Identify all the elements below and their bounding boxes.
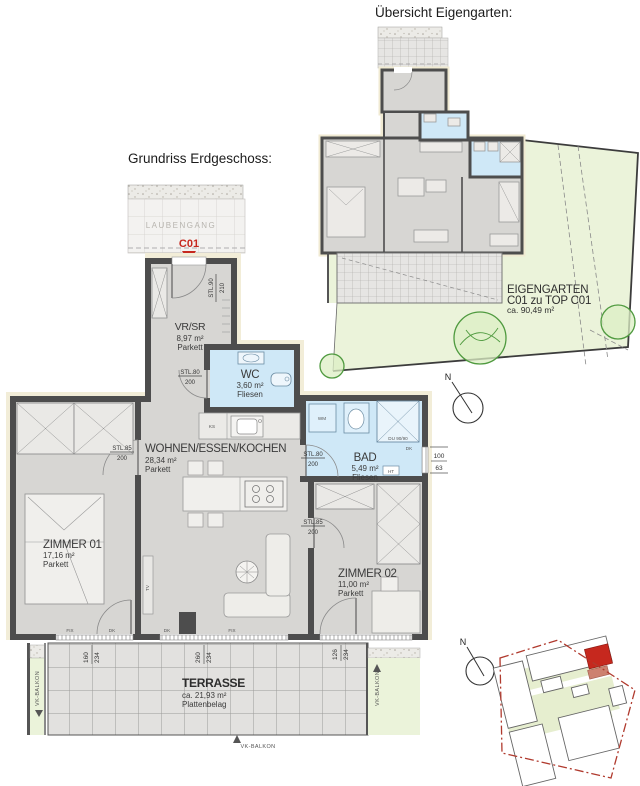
- canopy-hatch: [128, 185, 243, 199]
- svg-text:VK-BALKON: VK-BALKON: [375, 671, 381, 706]
- wohnen-area: 28,34 m²: [145, 456, 177, 465]
- svg-text:STL.90: STL.90: [209, 278, 215, 298]
- svg-text:63: 63: [435, 465, 443, 472]
- shower-label: DU 90/90: [388, 436, 408, 441]
- svg-text:200: 200: [185, 380, 196, 386]
- window-label-3: DK: [164, 628, 171, 633]
- overview-canopy-hatch: [378, 27, 442, 38]
- wc-name: WC: [241, 369, 260, 381]
- wohnen-floor: Parkett: [145, 465, 171, 474]
- svg-text:260: 260: [195, 652, 202, 663]
- bad-area: 5,49 m²: [351, 464, 378, 473]
- svg-text:100: 100: [434, 453, 445, 460]
- window-label-4: FIX: [228, 628, 235, 633]
- overview-balcony-edge: [327, 253, 329, 303]
- svg-text:STL.85: STL.85: [303, 520, 323, 526]
- washer-label: WM: [318, 416, 326, 421]
- window-label-1: FIX: [66, 628, 73, 633]
- laubengang-label: LAUBENGANG: [146, 221, 217, 230]
- balcony-edge-right: VK-BALKON: [373, 664, 381, 706]
- fridge-label: KS: [209, 424, 215, 429]
- room-label-vrsr: VR/SR 8,97 m² Parkett: [175, 321, 206, 352]
- zimmer01-name: ZIMMER 01: [43, 539, 102, 551]
- heater-label: HT: [388, 469, 394, 474]
- svg-text:VK-BALKON: VK-BALKON: [240, 744, 275, 750]
- north-label-site: N: [460, 637, 467, 647]
- wc-floor: Fliesen: [237, 390, 263, 399]
- zimmer02-name: ZIMMER 02: [338, 568, 397, 580]
- zimmer02-area: 11,00 m²: [338, 580, 369, 589]
- terrasse-name: TERRASSE: [182, 676, 245, 690]
- north-label-plan: N: [445, 372, 452, 382]
- zimmer01-area: 17,16 m²: [43, 551, 75, 560]
- bad-name: BAD: [354, 452, 377, 464]
- zimmer02-floor: Parkett: [338, 589, 364, 598]
- entry-door: [172, 257, 206, 265]
- bad-floor: Fliesen: [352, 473, 378, 482]
- terrasse-area: ca. 21,93 m²: [182, 691, 227, 700]
- svg-text:126: 126: [332, 649, 339, 660]
- zimmer01-floor: Parkett: [43, 560, 69, 569]
- wc-area: 3,60 m²: [236, 381, 263, 390]
- svg-text:234: 234: [94, 652, 101, 663]
- garden-area-value: ca. 90,49 m²: [507, 305, 554, 315]
- svg-text:200: 200: [308, 530, 319, 536]
- vrsr-area: 8,97 m²: [176, 334, 203, 343]
- svg-text:234: 234: [206, 652, 213, 663]
- svg-text:STL.80: STL.80: [180, 370, 200, 376]
- bath-window: [422, 447, 428, 473]
- window-label-2: DK: [109, 628, 116, 633]
- tv-label: TV: [145, 584, 150, 591]
- svg-text:234: 234: [343, 649, 350, 660]
- svg-text:TV: TV: [145, 584, 150, 591]
- room-label-bad: BAD 5,49 m² Fliesen: [351, 452, 378, 482]
- vrsr-name: VR/SR: [175, 321, 206, 333]
- terrasse-floor: Plattenbelag: [182, 700, 226, 709]
- floor-plan-page: Übersicht Eigengarten: Grundriss Erdgesc…: [0, 0, 640, 786]
- tv-board: [143, 556, 153, 614]
- overview-terrace: [337, 253, 502, 303]
- wohnen-name: WOHNEN/ESSEN/KOCHEN: [145, 443, 286, 455]
- unit-id-label: C01: [179, 238, 199, 250]
- svg-text:STL.80: STL.80: [303, 452, 323, 458]
- svg-text:VK-BALKON: VK-BALKON: [35, 671, 41, 706]
- ground-floor-title: Grundriss Erdgeschoss:: [128, 151, 272, 166]
- svg-text:210: 210: [220, 282, 226, 293]
- svg-text:200: 200: [117, 456, 128, 462]
- vrsr-floor: Parkett: [177, 343, 203, 352]
- svg-text:200: 200: [308, 462, 319, 468]
- svg-text:STL.85: STL.85: [112, 446, 132, 452]
- floor-plan-drawing: Übersicht Eigengarten: Grundriss Erdgesc…: [0, 0, 640, 786]
- overview-title: Übersicht Eigengarten:: [375, 5, 512, 20]
- vent-label: DK: [406, 446, 413, 451]
- svg-text:160: 160: [83, 652, 90, 663]
- overview-corridor-grid: [378, 38, 448, 68]
